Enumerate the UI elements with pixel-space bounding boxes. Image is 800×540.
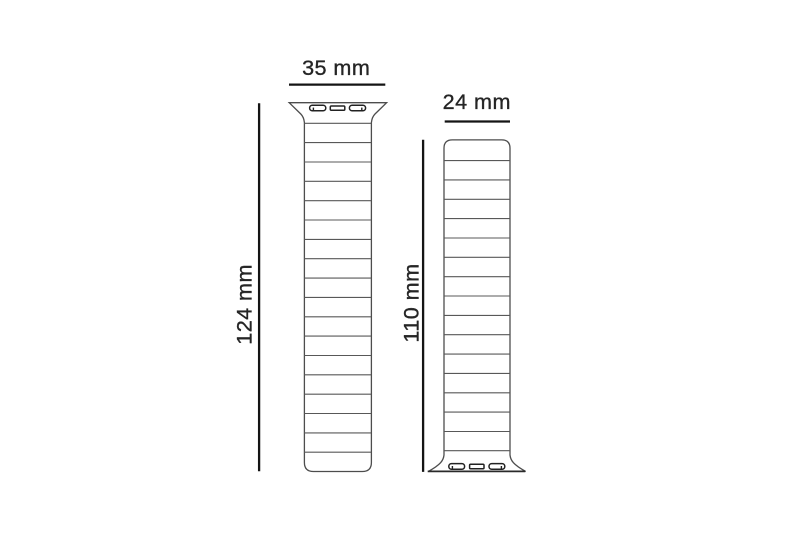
svg-text:124 mm: 124 mm bbox=[231, 264, 256, 345]
svg-text:24 mm: 24 mm bbox=[443, 89, 511, 114]
svg-text:110 mm: 110 mm bbox=[399, 263, 424, 342]
svg-text:35 mm: 35 mm bbox=[302, 55, 370, 80]
